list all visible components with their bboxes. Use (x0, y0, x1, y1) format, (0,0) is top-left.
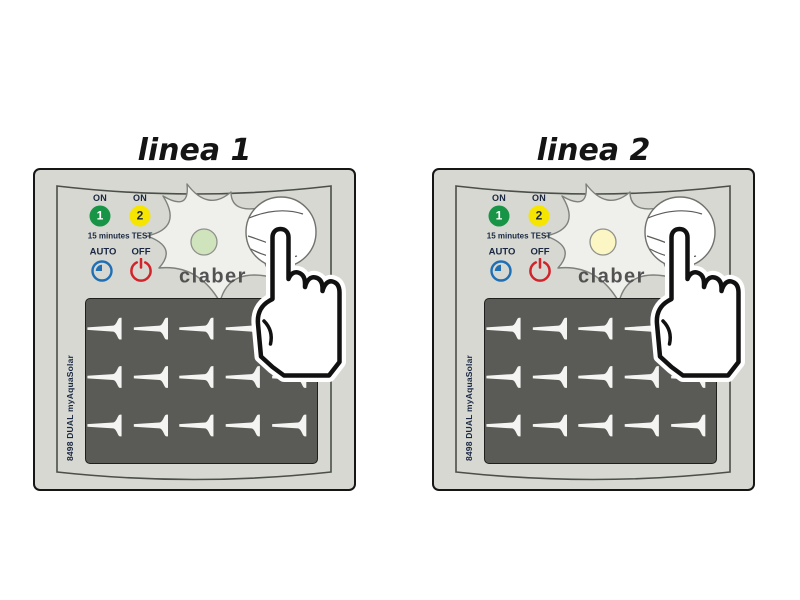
off-label: OFF (132, 247, 151, 258)
test-button-circle (246, 197, 316, 267)
power-icon (128, 258, 154, 284)
solar-panel (484, 298, 717, 464)
on-label-1: ON (492, 193, 506, 203)
brand-logo: claber (578, 266, 646, 289)
off-label: OFF (531, 247, 550, 258)
test-button-circle (645, 197, 715, 267)
led-indicator (590, 229, 616, 255)
led-indicator (191, 229, 217, 255)
model-label: 8498 DUAL myAquaSolar (65, 355, 75, 461)
panel-title-linea-1: linea 1 (33, 133, 356, 168)
on-label-2: ON (133, 193, 147, 203)
auto-label: AUTO (90, 247, 117, 258)
channel-2-button: 2 (529, 206, 550, 227)
clock-icon (89, 258, 115, 284)
panel-title-linea-2: linea 2 (432, 133, 755, 168)
timer-device-linea-2: ON ON 1 2 15 minutes TEST AUTO OFF clabe… (432, 168, 755, 491)
power-icon (527, 258, 553, 284)
on-label-2: ON (532, 193, 546, 203)
channel-2-button: 2 (130, 206, 151, 227)
channel-1-button: 1 (489, 206, 510, 227)
solar-cell-markers (86, 299, 317, 463)
clock-icon (488, 258, 514, 284)
timer-device-linea-1: ON ON 1 2 15 minutes TEST AUTO OFF clabe… (33, 168, 356, 491)
model-label: 8498 DUAL myAquaSolar (464, 355, 474, 461)
test-label: 15 minutes TEST (88, 232, 152, 241)
test-label: 15 minutes TEST (487, 232, 551, 241)
on-label-1: ON (93, 193, 107, 203)
auto-label: AUTO (489, 247, 516, 258)
brand-logo: claber (179, 266, 247, 289)
page-root: { "panels": [ { "title": "linea 1", "led… (0, 0, 800, 600)
channel-1-button: 1 (90, 206, 111, 227)
solar-panel (85, 298, 318, 464)
solar-cell-markers (485, 299, 716, 463)
